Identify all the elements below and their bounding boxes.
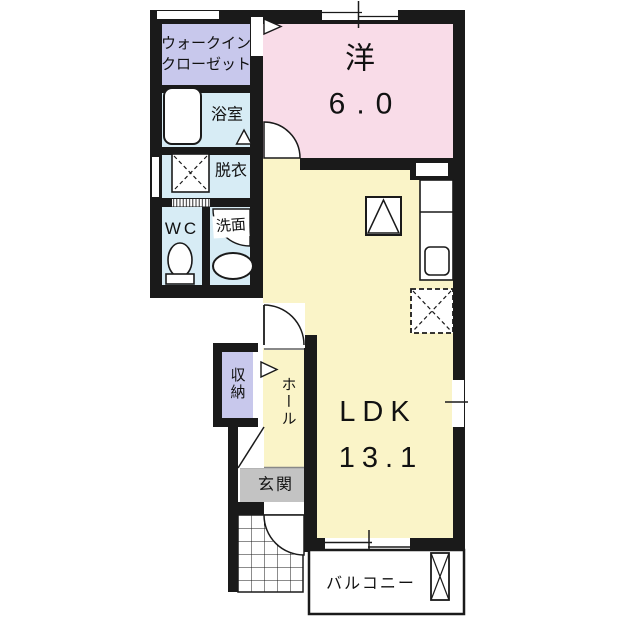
floorplan-drawing [0, 0, 640, 630]
ldk-right-window [452, 380, 464, 427]
wall-storage-top [213, 343, 258, 352]
dressing-folding-door-hatch [172, 199, 210, 207]
washing-machine-space [172, 154, 209, 192]
western-window [322, 9, 398, 20]
entrance-door-gap [264, 502, 304, 515]
western-room-door-arc [264, 122, 300, 158]
label-bathroom: 浴室 [211, 106, 243, 127]
label-storage: 収納 [227, 367, 248, 401]
label-wic-line1: ウォークイン [161, 33, 251, 54]
wall-right [453, 10, 465, 552]
kitchen-counter [420, 180, 453, 280]
label-western-room-size: 6.0 [329, 85, 404, 124]
label-wic: ウォークイン クローゼット [161, 33, 251, 75]
wall-hall-ldk [304, 335, 317, 552]
label-ldk-size: 13.1 [339, 440, 423, 478]
wic-door-gap [251, 17, 263, 56]
kitchen-sink [425, 247, 449, 275]
label-ldk: LDK [339, 394, 416, 432]
ldk-door [263, 303, 305, 348]
label-dressing: 脱衣 [215, 162, 247, 183]
stove [366, 197, 401, 235]
label-washroom: 洗面 [212, 214, 249, 238]
label-wic-line2: クローゼット [161, 54, 251, 75]
label-wc: WC [165, 218, 199, 240]
wall-storage-left [213, 343, 222, 427]
kitchen-niche-slot [416, 163, 448, 176]
wall-storage-bottom [213, 418, 258, 427]
wall-leftblock-bottom [150, 285, 263, 298]
wic-window [157, 11, 219, 19]
label-western-room: 洋 [345, 40, 375, 79]
bathroom-door-marker [237, 130, 252, 144]
washbasin [213, 253, 253, 279]
label-entrance: 玄関 [258, 476, 294, 497]
storage-door-marker [261, 362, 277, 377]
toilet [166, 243, 194, 284]
label-hall: ホール [278, 377, 299, 428]
floor-plan: ウォークイン クローゼット 浴室 脱衣 WC 洗面 洋 6.0 LDK 13.1… [0, 0, 640, 630]
shoe-cabinet [238, 427, 264, 468]
label-balcony: バルコニー [326, 575, 416, 596]
bathtub [164, 88, 201, 144]
wall-wc-washroom [202, 207, 210, 285]
refrigerator-space [411, 289, 453, 333]
dressing-window [152, 157, 159, 197]
